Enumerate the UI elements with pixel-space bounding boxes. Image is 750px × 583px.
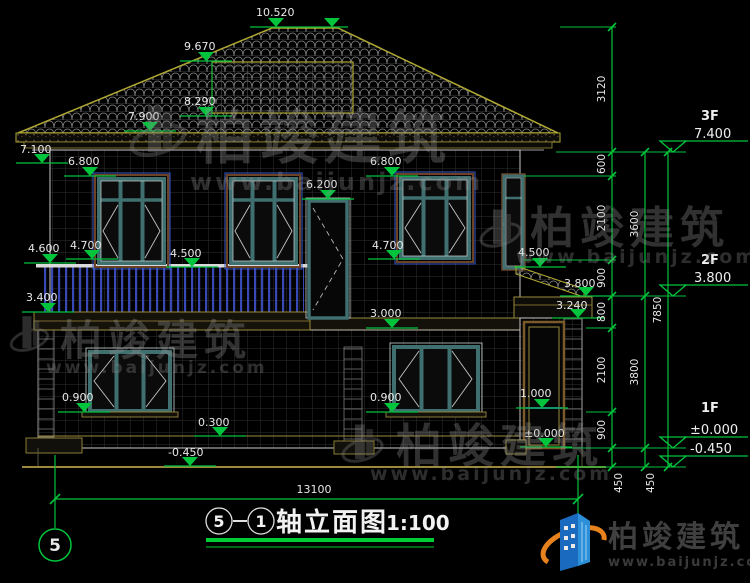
dim-3120: 3120	[596, 76, 608, 103]
brand-logo-url: www.baijunjz.com	[608, 555, 750, 570]
level-flag-3f: 3F 7.400	[660, 109, 748, 152]
drawing-title: 5 1 轴立面图 1:100	[206, 507, 450, 547]
level-flag-grade: -0.450	[660, 442, 748, 467]
elev-bay-cornice-text: 3.400	[26, 291, 58, 304]
dim-3800: 3800	[629, 359, 641, 386]
brand-logo: 柏竣建筑 www.baijunjz.com	[543, 513, 750, 571]
dim-450-a: 450	[613, 473, 625, 493]
level-2f-value: 3.800	[694, 271, 731, 286]
elev-annex-rail-text: 1.000	[520, 387, 552, 400]
title-underline	[206, 538, 434, 542]
svg-text:www.baijunjz.com: www.baijunjz.com	[370, 463, 612, 485]
elev-ridge: 10.520	[250, 6, 348, 27]
dim-900-upper: 900	[596, 268, 608, 288]
elev-window-head-left-text: 6.800	[68, 155, 100, 168]
balcony-railing-bars	[40, 267, 304, 312]
dim-7850: 7850	[652, 297, 664, 324]
dim-600: 600	[596, 154, 608, 174]
cad-elevation-drawing: 10.520 9.670 8.290 7.900 7.100 6.800 6.8…	[0, 0, 750, 583]
level-flag-1f: 1F ±0.000	[660, 401, 748, 448]
brand-logo-icon	[543, 513, 604, 571]
total-width-dim: 13100	[297, 483, 332, 496]
elev-ridge-text: 10.520	[256, 6, 295, 19]
window-1f-right	[386, 343, 486, 417]
dim-800: 800	[596, 302, 608, 322]
drawing-svg: 10.520 9.670 8.290 7.900 7.100 6.800 6.8…	[0, 0, 750, 583]
title-text: 轴立面图	[276, 507, 388, 538]
level-3f-label: 3F	[701, 109, 719, 124]
dim-450-b: 450	[645, 473, 657, 493]
dim-2100-lower: 2100	[596, 357, 608, 384]
level-1f-value: ±0.000	[690, 423, 738, 438]
elev-sill-1f-right-text: 0.900	[370, 391, 402, 404]
elev-rail-corner-text: 4.600	[28, 242, 60, 255]
window-2f-left	[93, 173, 170, 269]
elev-floor-band-text: 3.000	[370, 307, 402, 320]
axis-bubble-number: 5	[49, 536, 61, 556]
elev-grade: -0.450	[164, 446, 216, 466]
title-axis-end: 1	[255, 512, 266, 531]
elev-sill-1f-left-text: 0.900	[62, 391, 94, 404]
svg-text:www.baijunjz.com: www.baijunjz.com	[46, 358, 268, 378]
svg-text:www.baijunjz.com: www.baijunjz.com	[190, 168, 483, 196]
elev-dormer-top-text: 9.670	[184, 40, 216, 53]
svg-text:www.baijunjz.com: www.baijunjz.com	[516, 246, 750, 268]
level-3f-value: 7.400	[694, 127, 731, 142]
level-flags: 3F 7.400 2F 3.800 1F ±0.000 -0.450	[660, 109, 748, 467]
svg-text:柏竣建筑: 柏竣建筑	[196, 104, 452, 172]
brand-logo-text: 柏竣建筑	[608, 520, 744, 555]
door-2f	[306, 198, 350, 318]
title-axis-start: 5	[213, 512, 224, 531]
level-grade-value: -0.450	[690, 442, 732, 457]
title-scale: 1:100	[386, 511, 450, 535]
level-1f-label: 1F	[701, 401, 719, 416]
